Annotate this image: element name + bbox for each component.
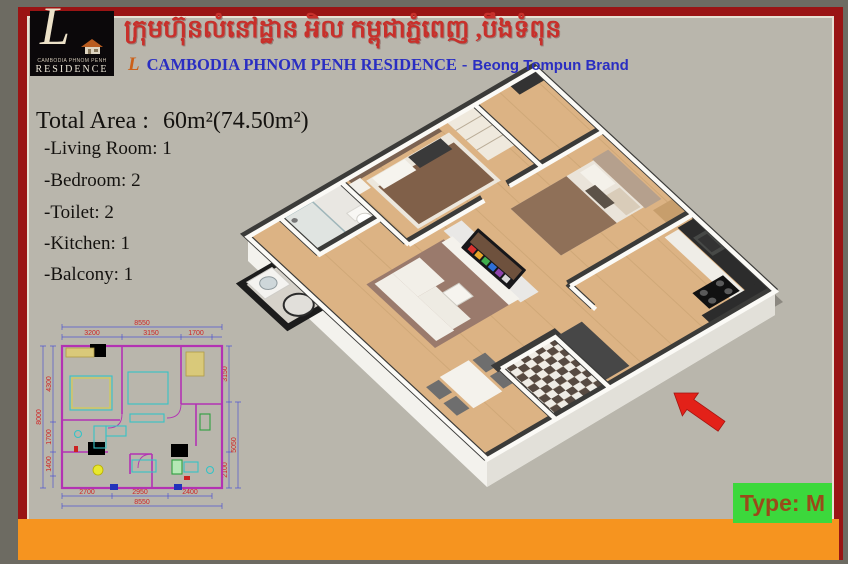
- feature-balcony: -Balcony: 1: [44, 264, 133, 286]
- dim-top-seg3: 1700: [188, 330, 204, 337]
- subtitle-separator: -: [462, 55, 468, 74]
- poster: L CAMBODIA PHNOM PENH RESIDENCE ក្រុមហ៊ុ…: [0, 0, 848, 564]
- type-badge: Type: M: [733, 483, 832, 523]
- dim-top-seg2: 3150: [143, 330, 159, 337]
- floorplan-2d: 8550 3200 3150 1700 8000 4300 1700 1400 …: [34, 318, 242, 514]
- logo-monogram: L: [40, 0, 70, 53]
- dim-bottom-seg1: 2700: [79, 489, 95, 496]
- dim-top-seg1: 3200: [84, 330, 100, 337]
- subtitle-monogram: L: [128, 54, 140, 75]
- total-area-value: 60m²(74.50m²): [163, 108, 309, 134]
- dim-bottom-overall: 8550: [134, 499, 150, 506]
- dim-left-overall: 8000: [36, 409, 43, 425]
- feature-bedroom: -Bedroom: 2: [44, 170, 141, 192]
- khmer-title: ក្រុមហ៊ុនលំនៅដ្ឋាន អិល កម្ពុជាភ្នំពេញ ,ប…: [124, 14, 724, 50]
- floorplan-3d: [228, 52, 794, 488]
- logo-line2: RESIDENCE: [30, 64, 114, 75]
- total-area-label: Total Area :: [36, 108, 149, 134]
- house-icon: [79, 38, 109, 55]
- total-area: Total Area :60m²(74.50m²): [36, 108, 309, 135]
- red-arrow: [666, 382, 730, 438]
- cad-columns: [88, 344, 188, 457]
- bottom-orange-bar: [18, 519, 839, 560]
- company-logo: L CAMBODIA PHNOM PENH RESIDENCE: [30, 11, 114, 76]
- feature-kitchen: -Kitchen: 1: [44, 233, 130, 255]
- feature-toilet: -Toilet: 2: [44, 202, 114, 224]
- dim-left-seg2: 1700: [46, 429, 53, 445]
- feature-living-room: -Living Room: 1: [44, 138, 172, 160]
- dim-left-seg3: 1400: [46, 456, 53, 472]
- cad-furniture: [70, 372, 214, 474]
- dim-bottom-seg3: 2400: [182, 489, 198, 496]
- dim-right-overall: 5050: [231, 437, 238, 453]
- subtitle-brand: Beong Tompun Brand: [472, 57, 628, 74]
- dim-top-overall: 8550: [134, 320, 150, 327]
- dim-left-seg1: 4300: [46, 376, 53, 392]
- subtitle: LCAMBODIA PHNOM PENH RESIDENCE-Beong Tom…: [128, 54, 629, 76]
- subtitle-name: CAMBODIA PHNOM PENH RESIDENCE: [147, 55, 457, 74]
- dim-bottom-seg2: 2950: [132, 489, 148, 496]
